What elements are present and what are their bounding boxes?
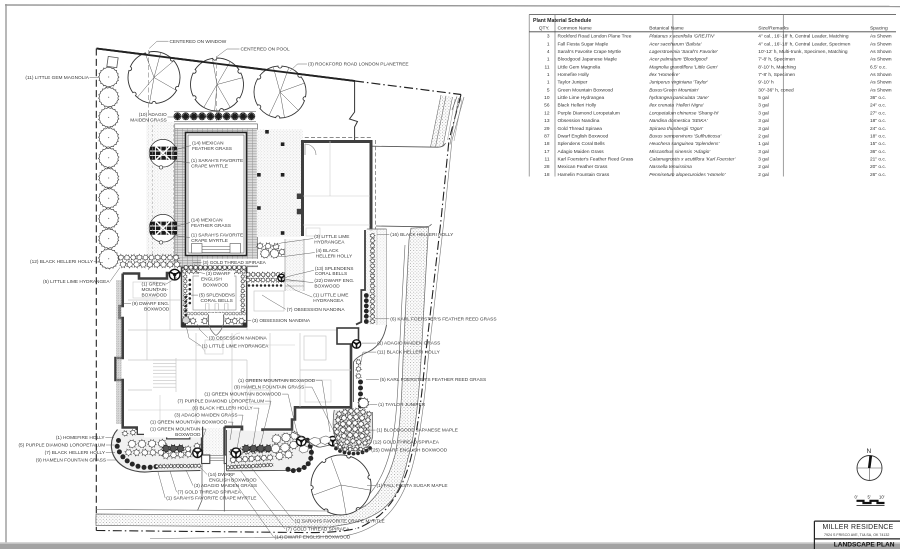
svg-text:Miscanthus sinensis 'Adagio': Miscanthus sinensis 'Adagio' (649, 149, 711, 155)
svg-text:Nandina domestica 'SEIKA': Nandina domestica 'SEIKA' (649, 118, 708, 124)
svg-text:As Shown: As Shown (870, 80, 892, 86)
svg-text:Sarah's Favorite Crape Myrtle: Sarah's Favorite Crape Myrtle (558, 49, 622, 55)
svg-text:(7) BLACK HELLERI HOLLY: (7) BLACK HELLERI HOLLY (45, 450, 106, 456)
svg-text:3 gal: 3 gal (758, 126, 768, 132)
svg-text:1 gal: 1 gal (758, 141, 768, 147)
svg-text:(6) BLACK HELLERI HOLLY: (6) BLACK HELLERI HOLLY (192, 406, 253, 412)
svg-text:13: 13 (544, 118, 550, 124)
svg-text:Taylor Juniper: Taylor Juniper (558, 80, 588, 86)
svg-text:4" cal., 16'-18' h, Central Le: 4" cal., 16'-18' h, Central Leader, Spec… (758, 41, 850, 47)
svg-text:CRAPE MYRTLE: CRAPE MYRTLE (191, 238, 228, 244)
svg-text:(10) ADAGIO: (10) ADAGIO (139, 112, 167, 118)
svg-text:(3) OBSESSION NANDINA: (3) OBSESSION NANDINA (252, 318, 311, 324)
svg-text:(5) PURPLE DIAMOND LOROPETALUM: (5) PURPLE DIAMOND LOROPETALUM (18, 443, 105, 449)
svg-text:(11) LITTLE GEM MAGNOLIA: (11) LITTLE GEM MAGNOLIA (25, 75, 89, 81)
svg-text:(3) LITTLE LIME: (3) LITTLE LIME (314, 234, 349, 240)
svg-text:BOXWOOD: BOXWOOD (203, 282, 229, 288)
svg-text:(1) BLOODGOOD JAPANESE MAPLE: (1) BLOODGOOD JAPANESE MAPLE (377, 428, 458, 434)
svg-text:5: 5 (547, 87, 550, 93)
svg-text:Little Lime Hydrangea: Little Lime Hydrangea (558, 95, 605, 101)
svg-text:10: 10 (544, 95, 550, 101)
svg-text:Botanical Name: Botanical Name (649, 26, 684, 32)
svg-text:4" cal., 16'-18' h, Central Le: 4" cal., 16'-18' h, Central Leader, Matc… (758, 34, 849, 40)
svg-text:(4) BLACK: (4) BLACK (316, 248, 340, 254)
svg-text:(5) SPLENDENS: (5) SPLENDENS (199, 293, 235, 299)
svg-text:26" o.c.: 26" o.c. (870, 172, 886, 178)
svg-text:(14) DWARF ENGLISH BOXWOOD: (14) DWARF ENGLISH BOXWOOD (275, 534, 351, 540)
svg-text:Heuchera sanguinea 'Splendens': Heuchera sanguinea 'Splendens' (649, 141, 720, 147)
svg-text:(3) OBSESSION NANDINA: (3) OBSESSION NANDINA (209, 335, 268, 341)
svg-text:LANDSCAPE PLAN: LANDSCAPE PLAN (834, 541, 895, 548)
svg-text:5 gal: 5 gal (758, 95, 768, 101)
svg-text:6.5' o.c.: 6.5' o.c. (870, 64, 887, 70)
svg-text:(3) ADAGIO MAIDEN GRASS: (3) ADAGIO MAIDEN GRASS (174, 413, 237, 419)
svg-text:Adagio Maiden Grass: Adagio Maiden Grass (558, 149, 605, 155)
svg-text:Common Name: Common Name (558, 26, 593, 32)
svg-text:N: N (867, 448, 872, 455)
svg-text:MOUNTAIN-: MOUNTAIN- (142, 287, 169, 293)
svg-text:Fall Fiesta Sugar Maple: Fall Fiesta Sugar Maple (558, 41, 609, 47)
svg-text:BOXWOOD: BOXWOOD (314, 284, 340, 290)
svg-text:(12) BLACK HELLERI HOLLY: (12) BLACK HELLERI HOLLY (30, 259, 94, 265)
svg-text:(7) GOLD THREAD SPIRAEA: (7) GOLD THREAD SPIRAEA (286, 526, 350, 532)
svg-text:3 gal: 3 gal (758, 149, 768, 155)
svg-text:(5) LITTLE LIME HYDRANGEA: (5) LITTLE LIME HYDRANGEA (43, 279, 110, 285)
svg-text:Karl Foerster's Feather Reed G: Karl Foerster's Feather Reed Grass (558, 157, 634, 163)
svg-text:7'-8' h, Specimen: 7'-8' h, Specimen (758, 72, 795, 78)
svg-text:Black Helleri Holly: Black Helleri Holly (558, 103, 597, 109)
svg-text:56: 56 (544, 103, 550, 109)
svg-text:HYDRANGEA: HYDRANGEA (314, 240, 345, 246)
svg-text:8'-10' h, Matching: 8'-10' h, Matching (758, 64, 796, 70)
svg-text:Green Mountain Boxwood: Green Mountain Boxwood (558, 87, 614, 93)
svg-text:As Shown: As Shown (870, 57, 892, 63)
svg-text:Acer palmatum 'Bloodgood': Acer palmatum 'Bloodgood' (648, 57, 708, 63)
svg-text:(9) DWARF ENG.: (9) DWARF ENG. (132, 301, 169, 307)
svg-text:BOXWOOD: BOXWOOD (144, 306, 170, 312)
svg-text:Ilex 'Homefire': Ilex 'Homefire' (649, 72, 680, 78)
svg-text:Nassella tenuissima: Nassella tenuissima (649, 164, 692, 170)
svg-text:9'-10' h: 9'-10' h (758, 80, 774, 86)
svg-text:Platanus x acerifolia 'GREJTN': Platanus x acerifolia 'GREJTN' (649, 34, 715, 40)
svg-text:Purple Diamond Loropetalum: Purple Diamond Loropetalum (558, 110, 620, 116)
svg-text:Lagerstroemia 'Sarah's Favorit: Lagerstroemia 'Sarah's Favorite' (649, 49, 719, 55)
svg-text:Rockford Road London Plane Tre: Rockford Road London Plane Tree (558, 34, 632, 40)
svg-text:(1) ADAGIO MAIDEN GRASS: (1) ADAGIO MAIDEN GRASS (377, 341, 440, 347)
svg-text:Mexican Feather Grass: Mexican Feather Grass (558, 164, 608, 170)
svg-text:30"-36" h, coned: 30"-36" h, coned (758, 87, 794, 93)
svg-text:2 gal: 2 gal (758, 172, 768, 178)
svg-text:(1) GREEN: (1) GREEN (142, 282, 167, 288)
svg-text:18: 18 (544, 172, 550, 178)
svg-text:As Shown: As Shown (870, 87, 892, 93)
svg-text:1: 1 (547, 57, 550, 63)
svg-text:(1) GREEN MOUNTAIN BOXWOOD: (1) GREEN MOUNTAIN BOXWOOD (204, 392, 282, 398)
svg-text:11: 11 (545, 64, 550, 70)
svg-text:18" o.c.: 18" o.c. (870, 133, 886, 139)
svg-text:Loropetalum chinense 'Shang-hi: Loropetalum chinense 'Shang-hi' (649, 110, 720, 116)
svg-text:(7) PURPLE DIAMOND LOROPETALUM: (7) PURPLE DIAMOND LOROPETALUM (177, 399, 264, 405)
svg-text:1: 1 (547, 41, 550, 47)
svg-text:MAIDEN GRASS: MAIDEN GRASS (130, 117, 166, 123)
svg-text:(1) HOMEFIRE HOLLY: (1) HOMEFIRE HOLLY (56, 435, 106, 441)
svg-text:(9) HAMELN FOUNTAIN GRASS: (9) HAMELN FOUNTAIN GRASS (234, 385, 304, 391)
svg-text:3 gal: 3 gal (758, 118, 768, 124)
svg-text:FEATHER GRASS: FEATHER GRASS (191, 223, 231, 229)
svg-text:Size/Remarks: Size/Remarks (758, 26, 789, 32)
svg-text:(1) FALL FIESTA SUGAR MAPLE: (1) FALL FIESTA SUGAR MAPLE (377, 483, 448, 489)
svg-text:3 gal: 3 gal (758, 110, 768, 116)
svg-text:1: 1 (547, 80, 550, 86)
svg-text:CRAPE MYRTLE: CRAPE MYRTLE (191, 164, 228, 170)
svg-text:(1) GREEN MOUNTAIN BOXWOOD: (1) GREEN MOUNTAIN BOXWOOD (238, 378, 316, 384)
svg-text:Homefire Holly: Homefire Holly (558, 72, 590, 78)
svg-text:7924 S FRISCO AVE, TULSA, OK 7: 7924 S FRISCO AVE, TULSA, OK 74132 (824, 533, 889, 537)
svg-text:Gold Thread Spiraea: Gold Thread Spiraea (558, 126, 603, 132)
svg-text:HYDRANGEA: HYDRANGEA (313, 298, 344, 304)
svg-text:3: 3 (547, 34, 550, 40)
svg-text:4: 4 (547, 49, 550, 55)
svg-text:Juniperus virginiana 'Taylor': Juniperus virginiana 'Taylor' (648, 80, 709, 86)
svg-text:(7) OBSESSION NANDINA: (7) OBSESSION NANDINA (287, 307, 346, 313)
svg-text:MILLER RESIDENCE: MILLER RESIDENCE (822, 524, 893, 531)
svg-text:Pennisetum alopecuroides 'Hame: Pennisetum alopecuroides 'Hameln' (649, 172, 726, 178)
svg-text:87: 87 (544, 133, 550, 139)
svg-text:BOXWOOD: BOXWOOD (142, 292, 168, 298)
svg-text:24" o.c.: 24" o.c. (870, 126, 886, 132)
svg-text:15" o.c.: 15" o.c. (870, 141, 886, 147)
svg-text:10': 10' (879, 495, 885, 500)
svg-text:Ilex crenata 'Helleri Nigra': Ilex crenata 'Helleri Nigra' (649, 103, 704, 109)
svg-text:(1) GREEN MOUNTAIN BOXWOOD: (1) GREEN MOUNTAIN BOXWOOD (150, 420, 228, 426)
svg-text:(1) LITTLE LIME HYDRANGEA: (1) LITTLE LIME HYDRANGEA (202, 343, 269, 349)
svg-text:(3) GOLD THREAD SPIRAEA: (3) GOLD THREAD SPIRAEA (203, 260, 267, 266)
svg-text:Buxus'Green Mountain': Buxus'Green Mountain' (649, 87, 700, 93)
svg-text:Splendens Coral Bells: Splendens Coral Bells (558, 141, 606, 147)
svg-text:BOXWOOD: BOXWOOD (175, 432, 201, 438)
svg-text:29: 29 (544, 126, 550, 132)
svg-text:11: 11 (545, 157, 550, 163)
svg-text:3 gal: 3 gal (758, 103, 768, 109)
svg-text:(25) DWARF ENGLISH BOXWOOD: (25) DWARF ENGLISH BOXWOOD (371, 448, 447, 454)
svg-text:(9) HAMELN FOUNTAIN GRASS: (9) HAMELN FOUNTAIN GRASS (36, 458, 106, 464)
svg-text:(3) DWARF: (3) DWARF (206, 271, 230, 277)
svg-text:ENGLISH: ENGLISH (201, 277, 222, 283)
svg-text:Spacing: Spacing (870, 26, 888, 32)
svg-text:Bloodgood Japanese Maple: Bloodgood Japanese Maple (558, 57, 618, 63)
svg-text:10'-12' h, Multi-trunk, Specim: 10'-12' h, Multi-trunk, Specimen, Matchi… (758, 49, 848, 55)
svg-text:1: 1 (547, 72, 550, 78)
svg-text:Buxus sempervirens 'Suffrutico: Buxus sempervirens 'Suffruticosa' (649, 133, 722, 139)
svg-text:36" o.c.: 36" o.c. (870, 149, 886, 155)
svg-text:(1) GREEN MOUNTAIN: (1) GREEN MOUNTAIN (150, 427, 201, 433)
svg-text:Acer saccharum 'Bailsta': Acer saccharum 'Bailsta' (648, 41, 702, 47)
svg-text:Plant Material Schedule: Plant Material Schedule (533, 18, 591, 24)
svg-text:20" o.c.: 20" o.c. (870, 164, 886, 170)
svg-text:(7) GOLD THREAD SPIRAEA: (7) GOLD THREAD SPIRAEA (178, 489, 242, 495)
svg-text:Little Gem Magnolia: Little Gem Magnolia (558, 64, 601, 70)
svg-text:21" o.c.: 21" o.c. (870, 157, 886, 163)
svg-text:(1) SARAH'S FAVORITE: (1) SARAH'S FAVORITE (191, 158, 243, 164)
svg-text:17: 17 (544, 149, 550, 155)
svg-text:Calamagrostis x acutiflora 'Ka: Calamagrostis x acutiflora 'Karl Foerste… (649, 157, 736, 163)
svg-text:(1) TAYLOR JUNIPER: (1) TAYLOR JUNIPER (378, 402, 426, 408)
svg-text:(11) BLACK HELLERI HOLLY: (11) BLACK HELLERI HOLLY (377, 350, 440, 356)
svg-text:27" o.c.: 27" o.c. (870, 110, 886, 116)
svg-text:CORAL BELLS: CORAL BELLS (201, 298, 233, 304)
svg-text:Dwarf English Boxwood: Dwarf English Boxwood (558, 133, 609, 139)
svg-text:0': 0' (855, 495, 858, 500)
svg-text:18" o.c.: 18" o.c. (870, 118, 886, 124)
svg-text:QTY.: QTY. (539, 26, 550, 32)
svg-text:(16) BLACK HELLERI HOLLY: (16) BLACK HELLERI HOLLY (390, 232, 454, 238)
svg-text:As Shown: As Shown (870, 34, 892, 40)
svg-text:FEATHER GRASS: FEATHER GRASS (192, 146, 232, 152)
svg-text:(6) KARL FOERSTER'S FEATHER RE: (6) KARL FOERSTER'S FEATHER REED GRASS (390, 316, 496, 322)
svg-text:(1) SARAH'S FAVORITE CRAPE MYR: (1) SARAH'S FAVORITE CRAPE MYRTLE (166, 496, 256, 502)
svg-text:24" o.c.: 24" o.c. (870, 103, 886, 109)
svg-text:hydrangea paniculata 'Jane': hydrangea paniculata 'Jane' (649, 95, 710, 101)
svg-text:CENTERED ON POOL: CENTERED ON POOL (241, 47, 290, 53)
svg-text:(22) DWARF ENG.: (22) DWARF ENG. (314, 278, 354, 284)
svg-text:As Shown: As Shown (870, 72, 892, 78)
svg-text:As Shown: As Shown (870, 49, 892, 55)
svg-text:Obsession Nandina: Obsession Nandina (558, 118, 600, 124)
svg-text:HELLERI HOLLY: HELLERI HOLLY (316, 254, 353, 260)
svg-text:(1) SARAH'S FAVORITE CRAPE MYR: (1) SARAH'S FAVORITE CRAPE MYRTLE (295, 518, 385, 524)
svg-text:7'-8' h, Specimen: 7'-8' h, Specimen (758, 57, 795, 63)
svg-text:36" o.c.: 36" o.c. (870, 95, 886, 101)
svg-text:(14) MEXICAN: (14) MEXICAN (192, 141, 224, 147)
svg-text:(14) MEXICAN: (14) MEXICAN (191, 218, 223, 224)
svg-text:2 gal: 2 gal (758, 133, 768, 139)
svg-text:2 gal: 2 gal (758, 164, 768, 170)
svg-text:(5) KARL FOERSTER'S FEATHER RE: (5) KARL FOERSTER'S FEATHER REED GRASS (380, 377, 486, 383)
svg-text:5': 5' (868, 495, 871, 500)
svg-text:Magnolia grandiflora 'Little G: Magnolia grandiflora 'Little Gem' (649, 64, 719, 70)
svg-text:(1) SARAH'S FAVORITE: (1) SARAH'S FAVORITE (191, 233, 243, 239)
svg-text:(1) LITTLE LIME: (1) LITTLE LIME (313, 293, 348, 299)
svg-text:CENTERED ON WINDOW: CENTERED ON WINDOW (170, 39, 227, 45)
svg-text:(13) SPLENDENS: (13) SPLENDENS (315, 266, 354, 272)
svg-text:Hamelin Fountain Grass: Hamelin Fountain Grass (558, 172, 610, 178)
svg-text:3 gal: 3 gal (758, 157, 768, 163)
svg-text:CORAL BELLS: CORAL BELLS (315, 271, 347, 277)
svg-text:(3) ADAGIO MAIDEN GRASS: (3) ADAGIO MAIDEN GRASS (194, 483, 257, 489)
svg-text:Spiraea thunbergii 'Ogon': Spiraea thunbergii 'Ogon' (649, 126, 704, 132)
svg-text:18: 18 (544, 141, 550, 147)
svg-text:As Shown: As Shown (870, 41, 892, 47)
svg-text:(3) ROCKFORD ROAD LONDON PLANE: (3) ROCKFORD ROAD LONDON PLANETREE (308, 62, 409, 68)
svg-text:(12) GOLD THREAD SPIRAEA: (12) GOLD THREAD SPIRAEA (373, 440, 440, 446)
svg-text:28: 28 (544, 164, 550, 170)
svg-text:12: 12 (544, 110, 550, 116)
